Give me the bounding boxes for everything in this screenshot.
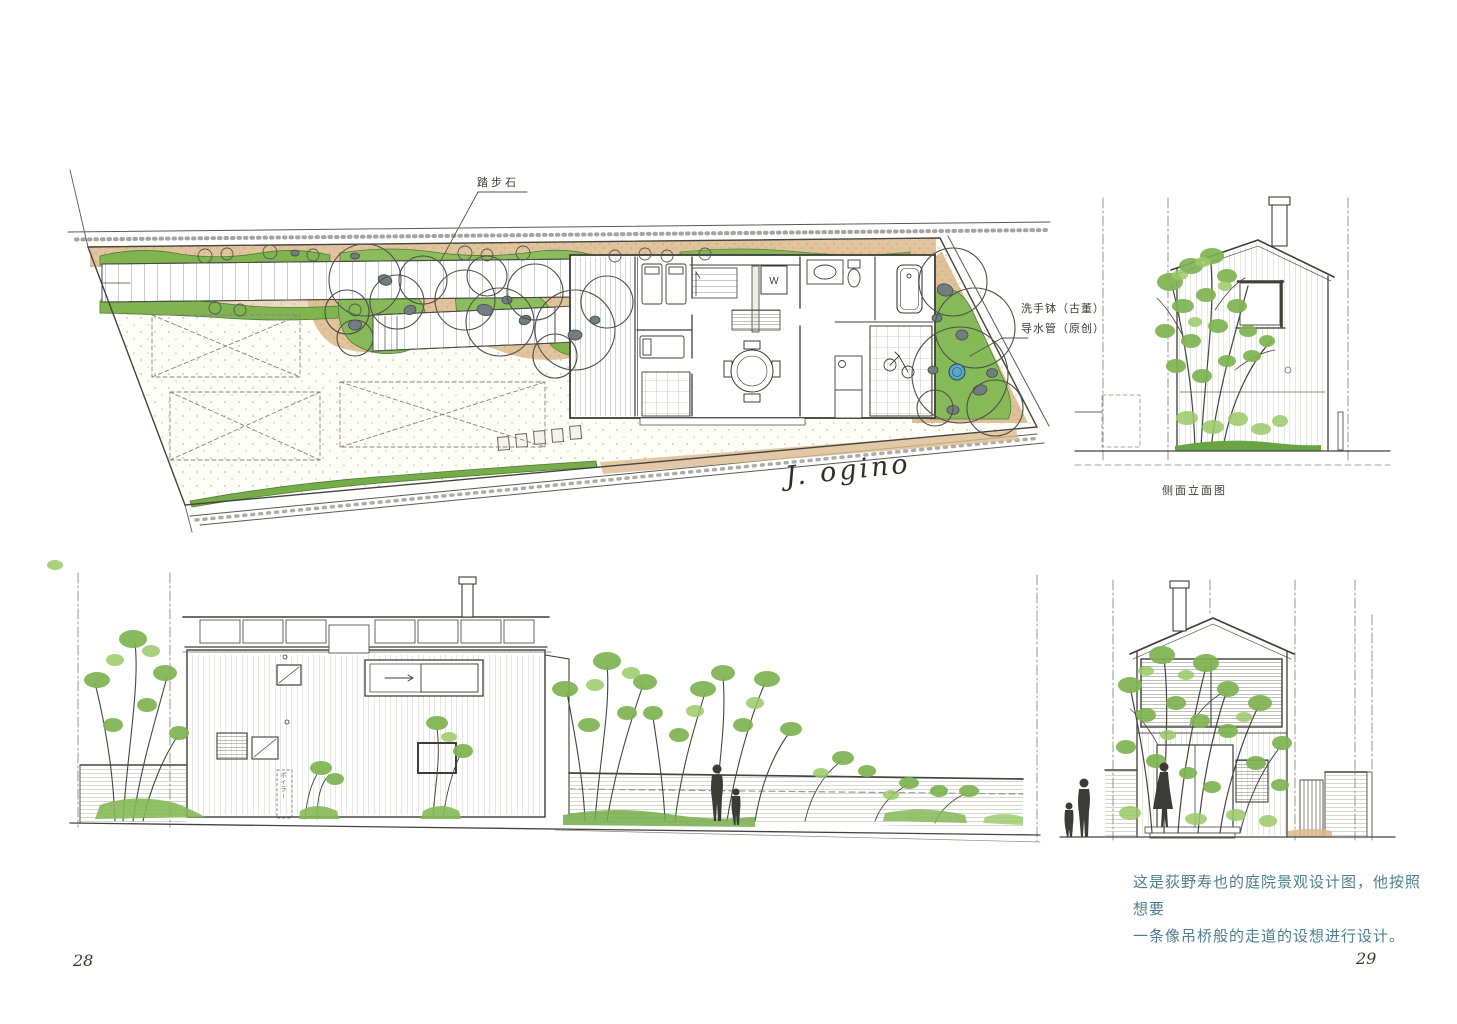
left-fence	[1105, 770, 1137, 837]
neighbor-outline	[1102, 395, 1140, 447]
left-page-number: 28	[73, 951, 93, 970]
house	[183, 577, 569, 818]
rug	[732, 310, 780, 330]
washer-label: W	[769, 276, 779, 287]
chimney	[1269, 197, 1290, 246]
wash-basin	[949, 364, 965, 380]
clerestory-windows	[200, 620, 534, 653]
side-elevation-drawing	[1075, 190, 1395, 500]
right-page-number: 29	[1356, 949, 1376, 968]
stepping-stone-label: 踏步石	[477, 174, 519, 190]
book-spread-page: W	[0, 0, 1457, 1024]
engawa-step	[640, 418, 805, 425]
water-pipe-label: 导水管（原创）	[1021, 319, 1105, 339]
washbasin-label: 洗手钵（古董）	[1021, 299, 1105, 319]
right-fence-gate	[1300, 772, 1372, 837]
chimney	[459, 577, 476, 617]
caption-line-1: 这是荻野寿也的庭院景观设计图，他按照想要	[1133, 869, 1433, 923]
gravel-path	[1288, 829, 1332, 837]
caption-paragraph: 这是荻野寿也的庭院景观设计图，他按照想要 一条像吊桥般的走道的设想进行设计。	[1133, 869, 1433, 950]
entry-tiles	[642, 372, 690, 416]
side-wing	[545, 655, 569, 815]
caption-line-2: 一条像吊桥般的走道的设想进行设计。	[1133, 923, 1433, 950]
house-floorplan: W	[570, 255, 935, 425]
side-elevation-caption: 侧面立面图	[1162, 482, 1227, 498]
front-elevation-drawing	[1060, 575, 1400, 875]
chimney	[1170, 581, 1189, 631]
long-elevation-drawing	[55, 565, 1055, 865]
stairs	[692, 268, 737, 298]
courtyard-tiles	[870, 326, 932, 416]
porch-steps	[1145, 827, 1240, 838]
boiler-label: ボイラー	[278, 772, 287, 800]
